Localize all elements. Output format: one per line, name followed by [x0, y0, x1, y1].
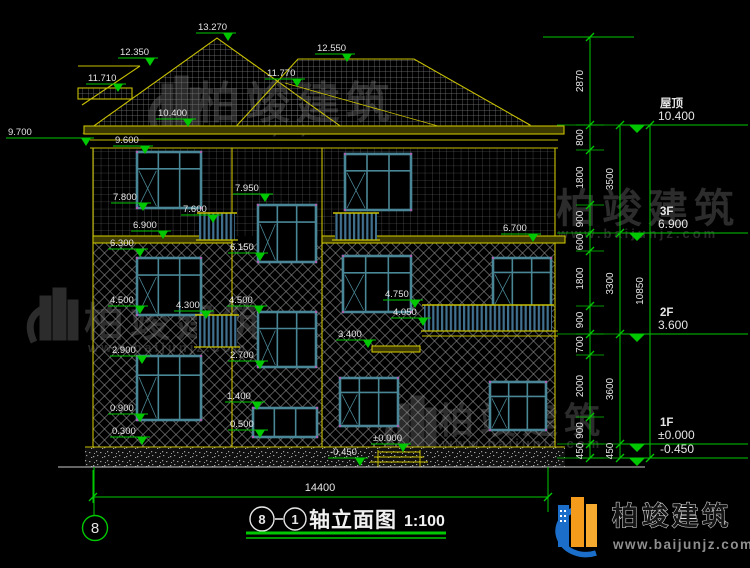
node-dot: [315, 261, 317, 263]
node-dot: [136, 151, 138, 153]
title-scale: 1:100: [404, 513, 445, 530]
node-dot: [257, 261, 259, 263]
dim-text: 900: [575, 210, 586, 227]
dim-text: 10850: [635, 277, 646, 305]
dim-text: 10.400: [158, 108, 187, 119]
node-dot: [344, 209, 346, 211]
brand-url: www.baijunjz.com: [612, 537, 750, 552]
node-dot: [257, 204, 259, 206]
dim-text: 450: [605, 442, 616, 459]
node-dot: [545, 429, 547, 431]
overall-width-value: 14400: [305, 482, 336, 494]
node-dot: [550, 257, 552, 259]
title-name: 轴立面图: [309, 508, 397, 532]
dim-text: 10.400: [658, 109, 695, 123]
dim-text: 11.710: [88, 73, 116, 84]
node-dot: [136, 207, 138, 209]
window: [344, 153, 412, 211]
dim-text: 1.400: [227, 391, 251, 402]
brand-logo: 柏竣建筑 www.baijunjz.com: [558, 497, 750, 555]
level-triangle: [629, 334, 645, 342]
level-triangle: [629, 125, 645, 133]
window: [342, 255, 412, 313]
dim-text: 3300: [605, 272, 616, 295]
left-canopy: [78, 88, 132, 99]
title-axis-start: 8: [258, 512, 265, 527]
node-dot: [342, 255, 344, 257]
node-dot: [492, 257, 494, 259]
node-dot: [136, 419, 138, 421]
node-dot: [200, 257, 202, 259]
dim-text: 2.700: [230, 350, 254, 361]
dim-text: -0.450: [660, 442, 694, 456]
node-dot: [315, 366, 317, 368]
dim-text: 1800: [575, 166, 586, 189]
floor-level: 2F3.600: [622, 307, 748, 342]
dim-text: 4.500: [110, 295, 134, 306]
dim-text: 4.500: [229, 295, 253, 306]
dim-text: 11.770: [267, 68, 295, 79]
dim-text: 13.270: [198, 22, 227, 33]
window: [257, 204, 317, 263]
logo-building-right: [586, 504, 597, 547]
balcony-railing: [332, 213, 380, 240]
dim-text: 0.300: [112, 426, 136, 437]
window: [257, 311, 317, 368]
dim-text: ±0.000: [658, 428, 695, 442]
dim-text: 900: [575, 422, 586, 439]
node-dot: [342, 311, 344, 313]
axis-bubble-8-label: 8: [91, 520, 99, 537]
dim-text: 900: [575, 311, 586, 328]
eave-band: [84, 126, 564, 134]
floor-level: 屋顶10.400: [622, 96, 748, 133]
drawing-title: 8 1 轴立面图 1:100: [246, 507, 446, 538]
level-triangle: [223, 33, 233, 41]
node-dot: [344, 153, 346, 155]
window: [136, 355, 202, 421]
node-dot: [489, 429, 491, 431]
dim-text: 0.900: [110, 403, 134, 414]
dim-text: 600: [575, 233, 586, 250]
dimension-chains: 2870800180090060018009007002000900450350…: [543, 33, 664, 462]
logo-building-mid: [571, 497, 584, 547]
dim-text: 6.900: [658, 217, 688, 231]
window: [136, 151, 202, 209]
dim-text: 6.150: [230, 242, 254, 253]
node-dot: [545, 381, 547, 383]
window: [339, 377, 399, 427]
elevation-drawing: 柏竣建筑www.baijunjz.com柏竣建筑www.baijunjz.com…: [0, 0, 750, 568]
dim-text: 6.300: [110, 238, 134, 249]
watermark-icon: [30, 288, 78, 342]
dim-text: 3.600: [658, 318, 688, 332]
dim-text: 1800: [575, 267, 586, 290]
node-dot: [489, 381, 491, 383]
elevation-marker: 9.700: [6, 127, 94, 146]
dim-text: 6.700: [503, 223, 527, 234]
logo-building-left: [558, 505, 569, 547]
node-dot: [410, 209, 412, 211]
node-dot: [410, 255, 412, 257]
dim-text: 4.050: [393, 307, 417, 318]
dim-text: 9.600: [115, 135, 139, 146]
dim-text: 450: [575, 442, 586, 459]
level-triangle: [629, 444, 645, 452]
dim-text: 7.600: [183, 204, 207, 215]
dim-text: 4.300: [176, 300, 200, 311]
dim-text: 3500: [605, 167, 616, 190]
node-dot: [136, 257, 138, 259]
dim-text: 700: [575, 336, 586, 353]
node-dot: [200, 151, 202, 153]
dim-text: -0.450: [330, 447, 357, 458]
dim-text: 2.900: [112, 345, 136, 356]
node-dot: [339, 425, 341, 427]
cad-canvas: 柏竣建筑www.baijunjz.com柏竣建筑www.baijunjz.com…: [0, 0, 750, 568]
level-triangle: [629, 458, 645, 466]
dim-text: 6.900: [133, 220, 157, 231]
level-triangle: [81, 138, 91, 146]
node-dot: [200, 355, 202, 357]
node-dot: [252, 436, 254, 438]
elevation-marker: 12.350: [118, 47, 158, 66]
dim-text: 3.400: [338, 329, 362, 340]
level-triangle: [145, 58, 155, 66]
dim-text: 12.550: [317, 43, 346, 54]
dim-text: 2000: [575, 374, 586, 397]
dim-text: 7.950: [235, 183, 259, 194]
title-axis-end: 1: [291, 512, 298, 527]
node-dot: [410, 153, 412, 155]
dim-text: 9.700: [8, 127, 32, 138]
node-dot: [397, 425, 399, 427]
node-dot: [315, 204, 317, 206]
balcony-railing: [194, 315, 240, 347]
node-dot: [397, 377, 399, 379]
dim-text: 0.500: [230, 419, 254, 430]
window: [489, 381, 547, 431]
dim-text: 4.750: [385, 289, 409, 300]
node-dot: [136, 314, 138, 316]
balcony-railing: [421, 305, 555, 331]
node-dot: [315, 311, 317, 313]
window: [492, 257, 552, 307]
dim-text: 7.800: [113, 192, 137, 203]
dim-text: 屋顶: [660, 96, 683, 110]
node-dot: [339, 377, 341, 379]
node-dot: [200, 419, 202, 421]
node-dot: [316, 407, 318, 409]
dim-text: 2870: [575, 69, 586, 92]
balcony-railing: [196, 213, 238, 240]
entry-canopy: [372, 346, 420, 352]
node-dot: [316, 436, 318, 438]
brand-name: 柏竣建筑: [612, 501, 732, 531]
dim-text: 12.350: [120, 47, 149, 58]
node-dot: [252, 407, 254, 409]
dim-text: 3600: [605, 377, 616, 400]
dim-text: ±0.000: [373, 433, 402, 444]
plinth-hatch: [85, 447, 565, 467]
dim-text: 800: [575, 129, 586, 146]
